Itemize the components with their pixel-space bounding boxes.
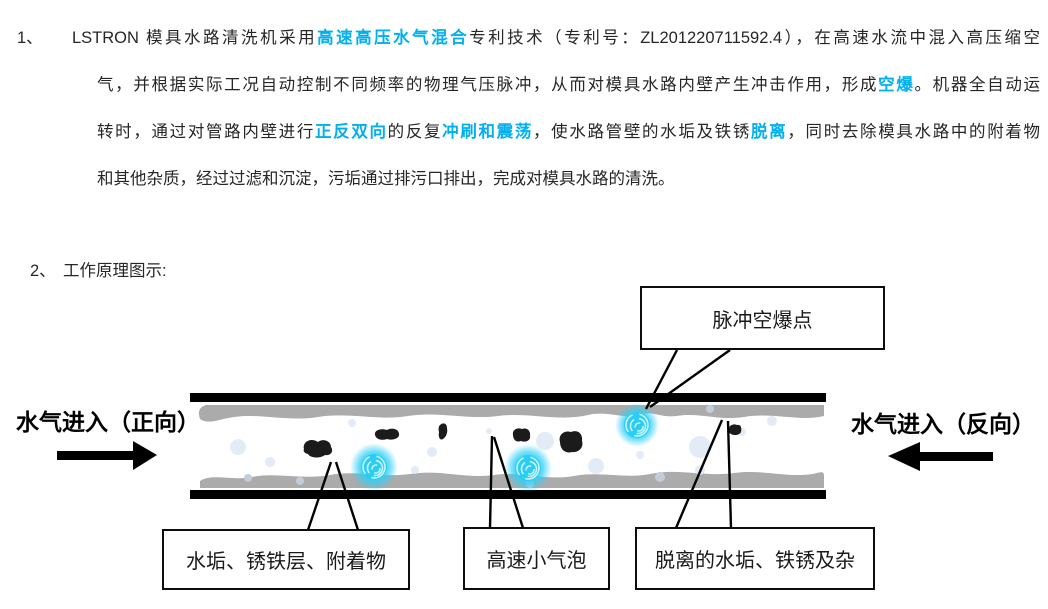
leader-line (728, 421, 731, 528)
reverse-arrow-icon (888, 442, 993, 471)
micro-bubble-dot (767, 416, 777, 426)
forward-flow-label: 水气进入（正向） (16, 403, 200, 437)
forward-arrow-icon (57, 441, 157, 470)
debris-blob (304, 440, 333, 458)
reverse-flow-label: 水气进入（反向） (851, 405, 1035, 439)
debris-blob (375, 429, 399, 440)
document-page: 1、 LSTRON 模具水路清洗机采用高速高压水气混合专利技术（专利号：ZL20… (0, 0, 1048, 609)
micro-bubble-dot (411, 466, 419, 474)
micro-bubble-dot (244, 474, 252, 482)
debris-blob (439, 423, 448, 439)
cavitation-bubble (350, 443, 398, 491)
cavitation-bubble (504, 444, 552, 492)
callout-pulse-cavitation-point: 脉冲空爆点 (640, 286, 885, 350)
micro-bubble-dot (230, 439, 246, 455)
micro-bubble-dot (588, 458, 604, 474)
callout-detached-debris: 脱离的水垢、铁锈及杂 (635, 527, 875, 590)
micro-bubble-dot (348, 419, 356, 427)
cavitation-bubble (615, 403, 659, 447)
debris-blob (560, 431, 583, 452)
micro-bubble-dot (486, 428, 492, 434)
leader-line (490, 436, 492, 528)
micro-bubble-dot (636, 451, 644, 459)
callout-high-speed-bubbles: 高速小气泡 (463, 527, 610, 590)
micro-bubble-dot (265, 457, 275, 467)
scale-layer-top (199, 405, 824, 422)
callout-scale-rust-deposits: 水垢、锈铁层、附着物 (162, 529, 410, 590)
micro-bubble-dot (655, 472, 665, 482)
micro-bubble-dot (296, 477, 304, 485)
debris-blob (513, 428, 530, 441)
pipe-top-wall (190, 393, 826, 402)
micro-bubble-dot (706, 405, 714, 413)
micro-bubble-dot (427, 447, 437, 457)
working-principle-diagram: 水气进入（正向） 水气进入（反向） 脉冲空爆点 水垢、锈铁层、附着物 高速小气泡… (0, 0, 1048, 609)
debris-blob (729, 424, 741, 435)
